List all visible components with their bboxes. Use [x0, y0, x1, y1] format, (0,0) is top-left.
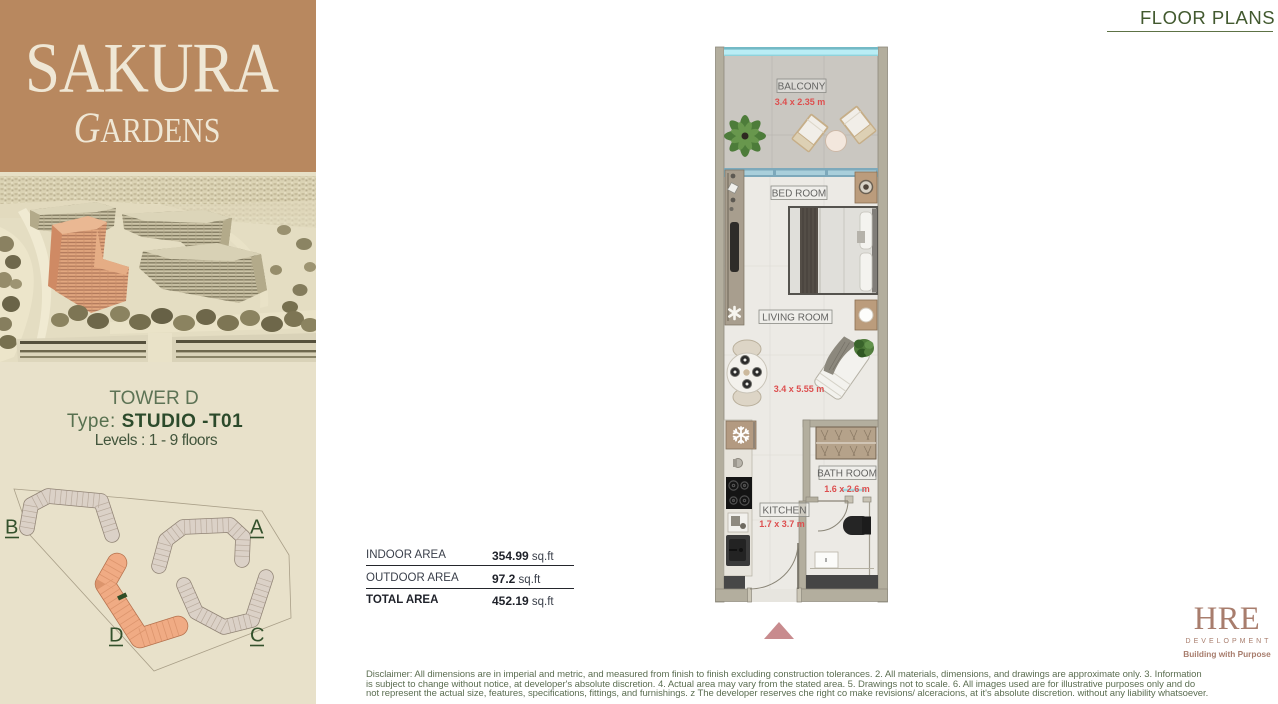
svg-text:3.4 x 5.55 m: 3.4 x 5.55 m	[774, 384, 825, 394]
svg-text:KITCHEN: KITCHEN	[763, 506, 807, 517]
svg-text:BATH ROOM: BATH ROOM	[817, 469, 877, 480]
svg-text:1.7 x 3.7 m: 1.7 x 3.7 m	[759, 519, 805, 529]
svg-text:BALCONY: BALCONY	[778, 82, 826, 93]
svg-text:LIVING ROOM: LIVING ROOM	[762, 313, 829, 324]
svg-text:D: D	[109, 625, 123, 647]
svg-text:BED ROOM: BED ROOM	[772, 189, 826, 200]
svg-text:B: B	[5, 517, 18, 539]
svg-text:1.6 x 2.6 m: 1.6 x 2.6 m	[824, 484, 870, 494]
svg-text:3.4 x 2.35 m: 3.4 x 2.35 m	[775, 97, 826, 107]
svg-text:C: C	[250, 625, 264, 647]
svg-text:A: A	[250, 517, 264, 539]
